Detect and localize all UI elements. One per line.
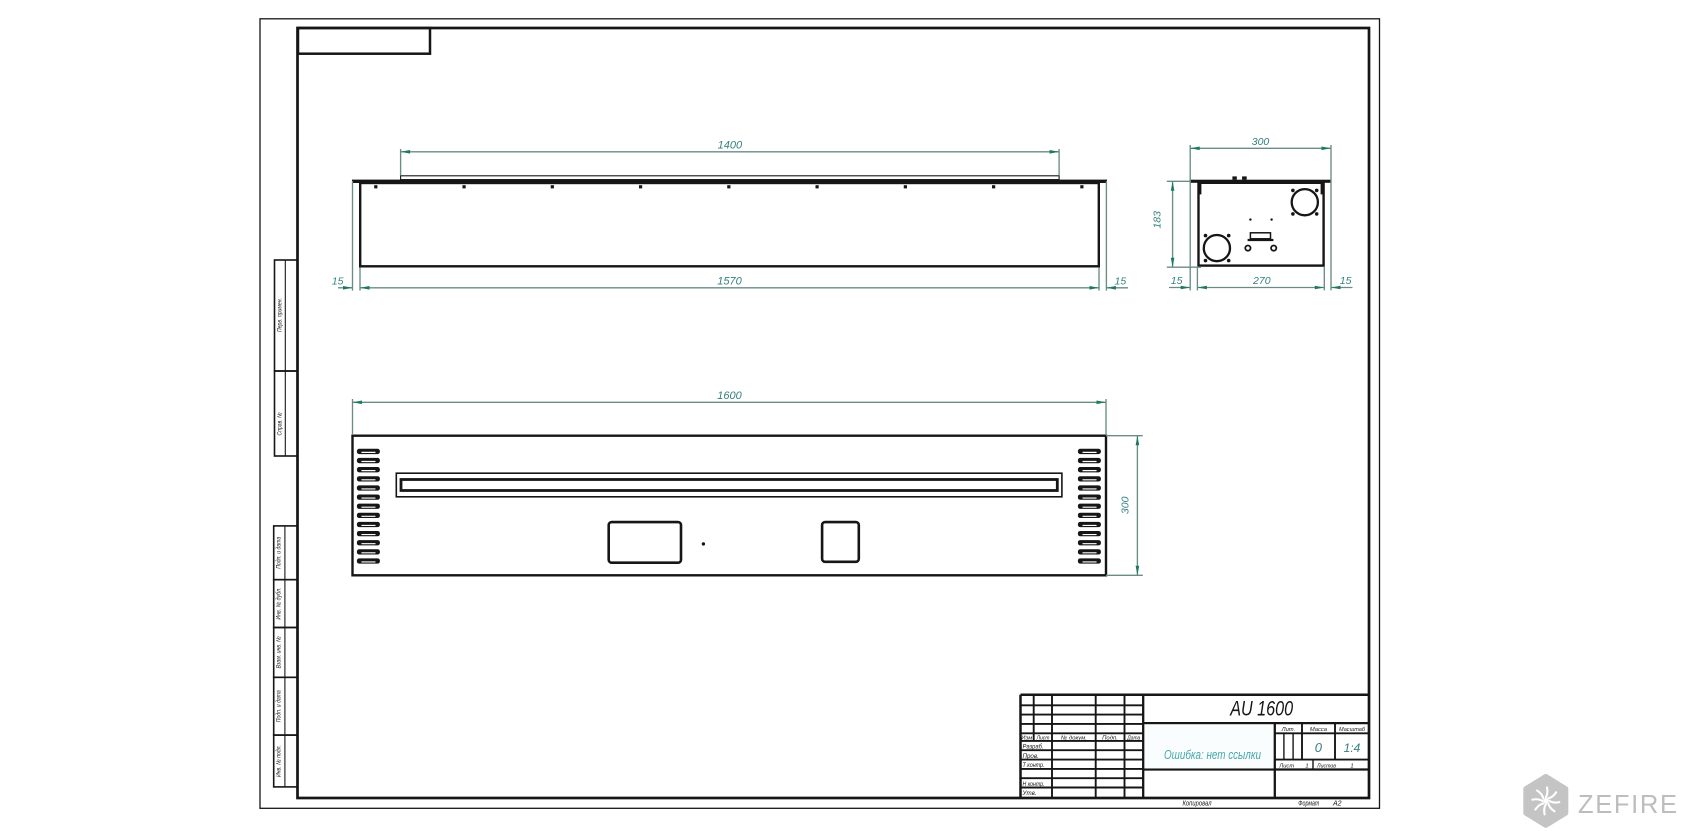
svg-text:Взам. инв. №: Взам. инв. № (276, 636, 283, 668)
svg-text:183: 183 (1151, 211, 1163, 229)
svg-text:Лит.: Лит. (1281, 727, 1296, 733)
svg-text:A2: A2 (1332, 800, 1342, 807)
svg-text:ZEFIRE: ZEFIRE (1578, 791, 1677, 819)
svg-text:Пров.: Пров. (1023, 753, 1039, 760)
svg-text:Т контр.: Т контр. (1023, 762, 1045, 769)
svg-text:Н контр.: Н контр. (1023, 781, 1045, 788)
svg-text:AU 1600: AU 1600 (1229, 698, 1294, 721)
svg-text:Листов: Листов (1316, 764, 1336, 770)
svg-text:15: 15 (332, 276, 344, 288)
svg-text:Копировал: Копировал (1183, 800, 1212, 807)
svg-text:Инв. № дубл.: Инв. № дубл. (276, 588, 283, 620)
svg-text:Подп. и дата: Подп. и дата (276, 536, 283, 568)
svg-text:Разраб.: Разраб. (1023, 744, 1044, 751)
svg-text:300: 300 (1120, 496, 1132, 514)
svg-text:Подп.: Подп. (1102, 735, 1118, 741)
svg-text:Утв.: Утв. (1022, 790, 1037, 797)
svg-text:0: 0 (1315, 740, 1323, 755)
svg-text:1600: 1600 (717, 390, 742, 402)
svg-text:№ докум.: № докум. (1061, 734, 1087, 741)
svg-text:Изм: Изм (1021, 735, 1032, 741)
svg-text:Масштаб: Масштаб (1339, 727, 1366, 733)
svg-text:15: 15 (1340, 275, 1352, 287)
svg-text:Подп. и дата: Подп. и дата (276, 690, 283, 722)
svg-text:1: 1 (1305, 764, 1308, 770)
svg-text:270: 270 (1252, 275, 1271, 287)
svg-text:1: 1 (1350, 764, 1353, 770)
svg-text:Лист: Лист (1278, 764, 1294, 770)
svg-text:Дата: Дата (1126, 735, 1140, 741)
svg-text:1:4: 1:4 (1344, 741, 1361, 755)
svg-text:Справ. №: Справ. № (277, 412, 284, 435)
svg-text:Ошибка: нет ссылки: Ошибка: нет ссылки (1164, 748, 1261, 762)
svg-text:Масса: Масса (1310, 727, 1328, 733)
svg-text:15: 15 (1115, 276, 1127, 288)
svg-text:Лист: Лист (1036, 735, 1050, 741)
svg-text:300: 300 (1252, 136, 1270, 148)
svg-text:1400: 1400 (718, 139, 743, 151)
svg-text:Формат: Формат (1298, 800, 1319, 807)
svg-text:Инв. № подл.: Инв. № подл. (276, 745, 283, 777)
svg-text:Перв. примен.: Перв. примен. (277, 298, 284, 332)
svg-text:15: 15 (1171, 275, 1183, 287)
svg-text:1570: 1570 (717, 276, 742, 288)
